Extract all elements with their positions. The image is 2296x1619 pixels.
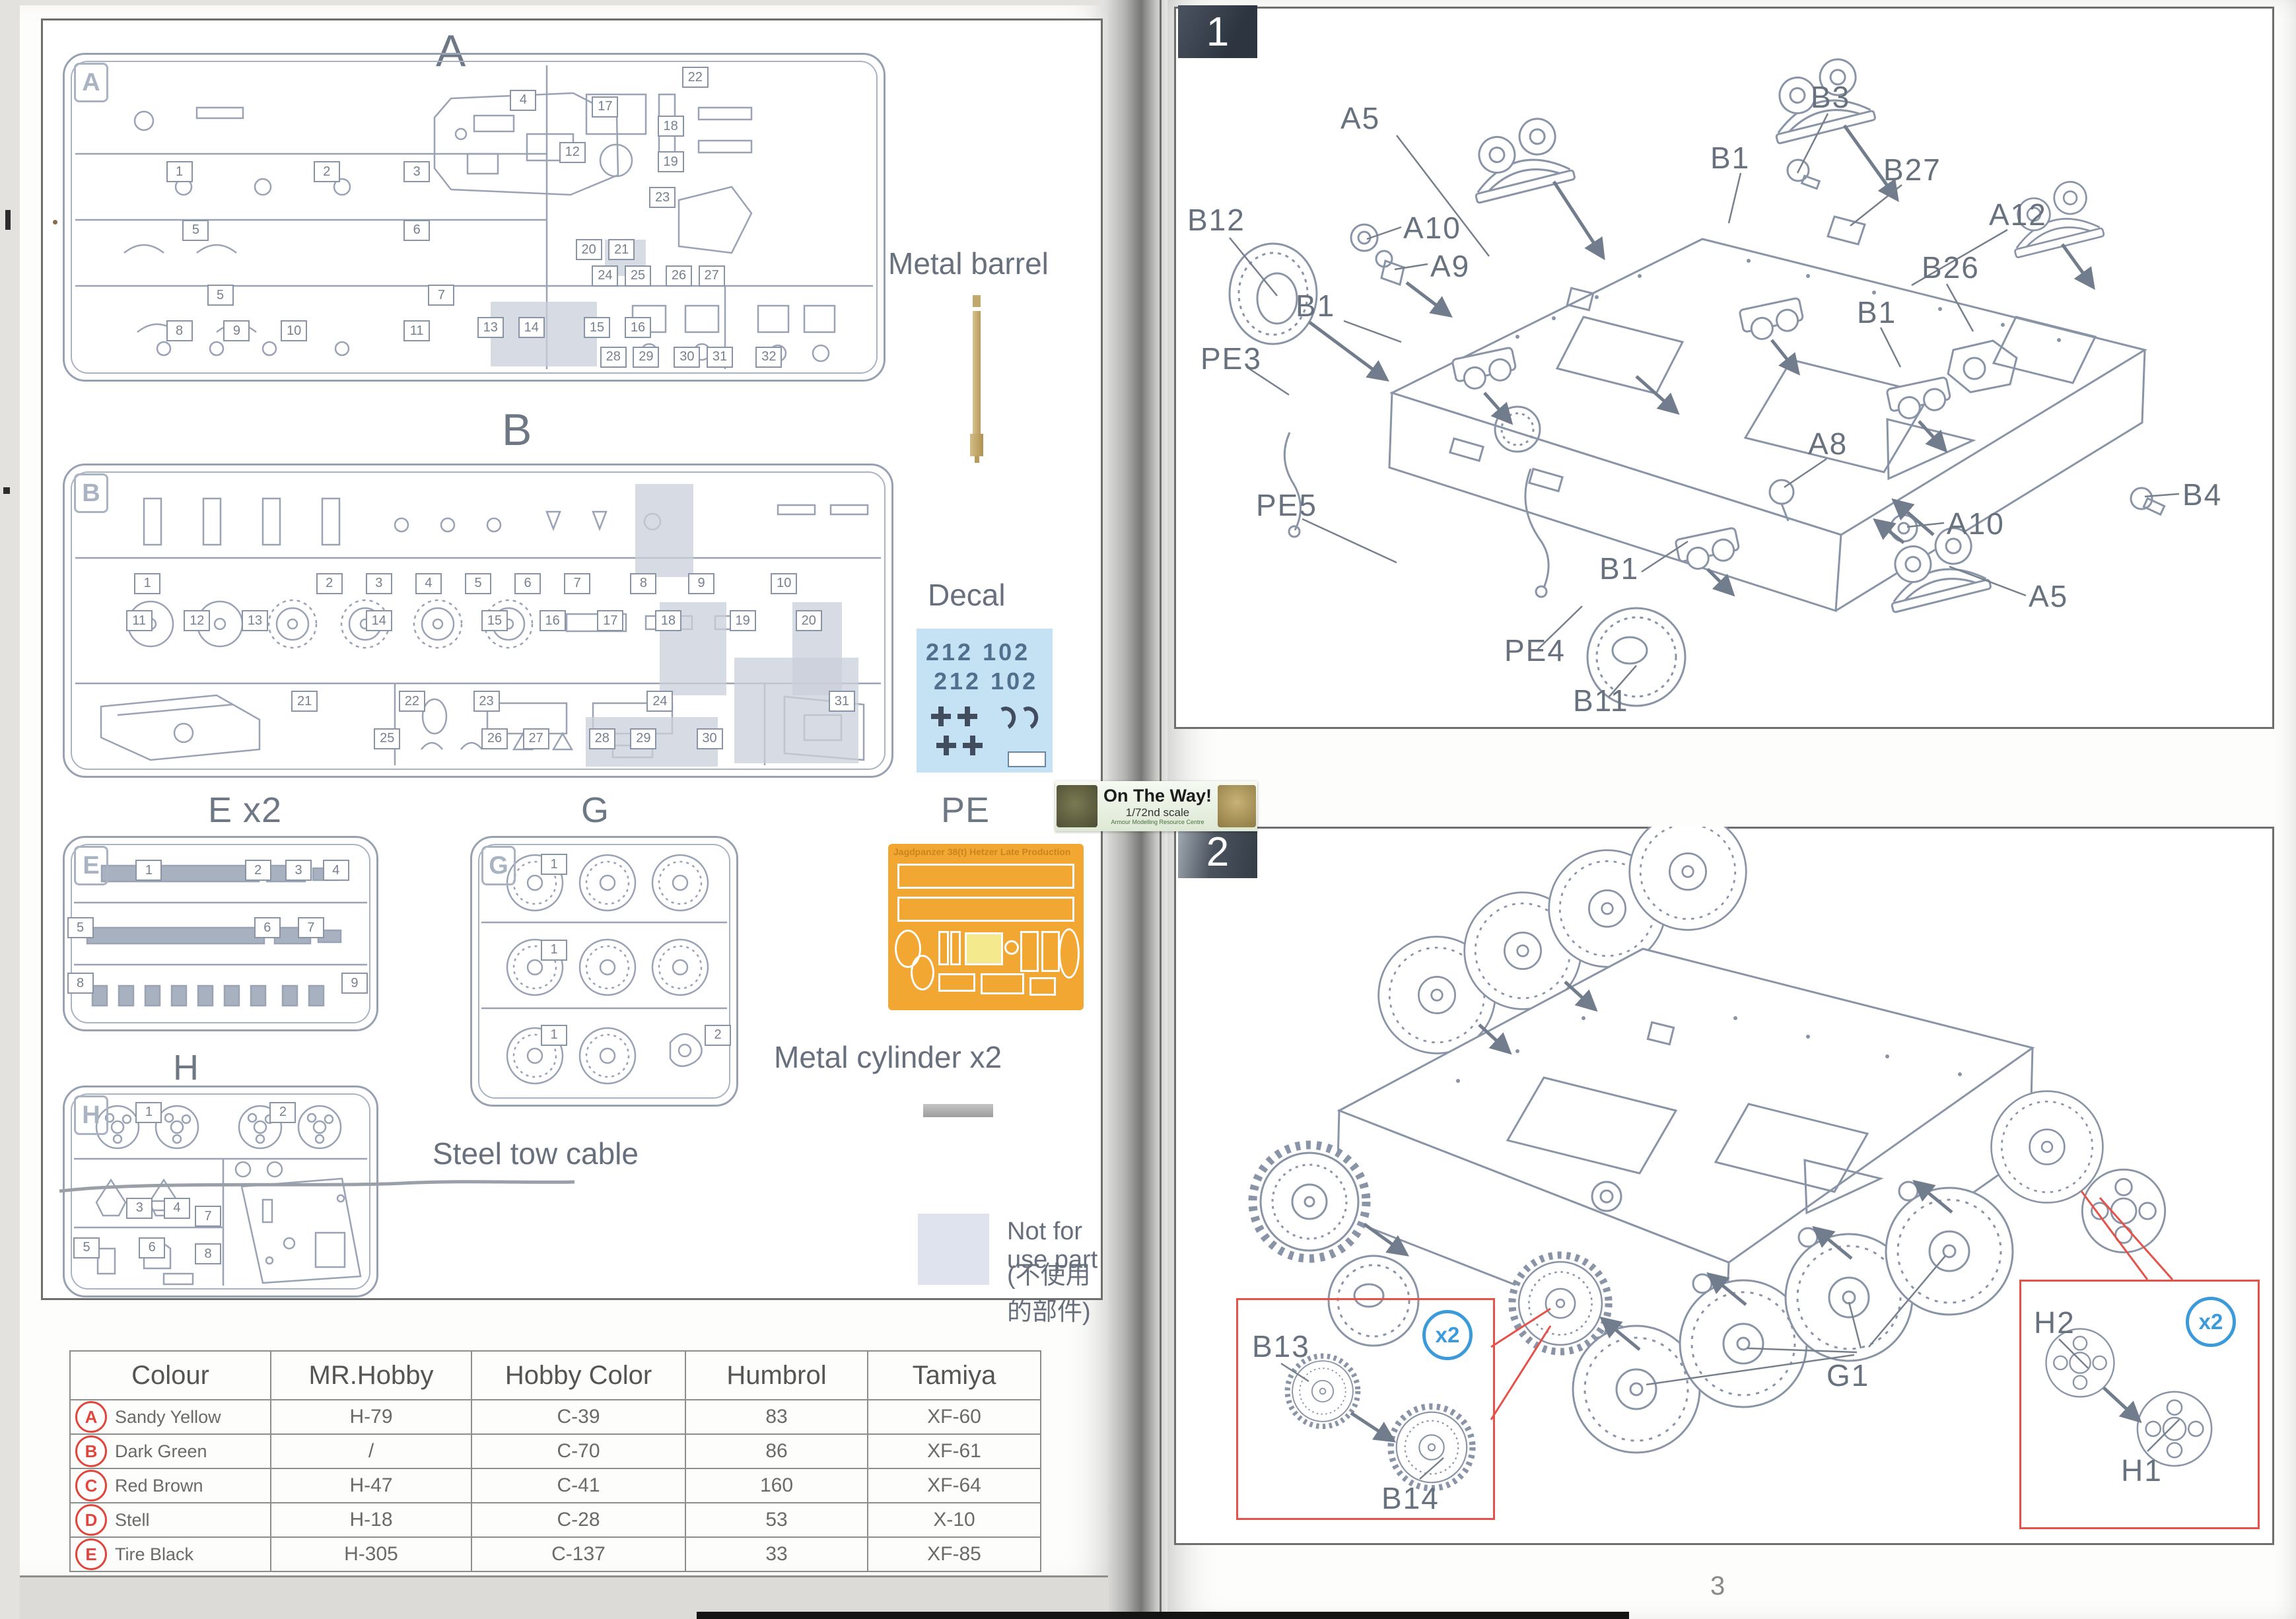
sprue-b-title: B xyxy=(502,404,533,456)
color-value: C-137 xyxy=(471,1537,685,1571)
color-table: ColourMR.HobbyHobby ColorHumbrolTamiya A… xyxy=(69,1350,1041,1572)
part-number-tag: 31 xyxy=(707,347,733,368)
scan-bottom-bar xyxy=(697,1612,1629,1619)
part-number-tag: 27 xyxy=(699,265,725,287)
part-number-tag: 16 xyxy=(625,317,651,338)
part-number-tag: 3 xyxy=(403,161,430,182)
step-2-number-badge: 2 xyxy=(1178,825,1257,878)
pe-title: PE xyxy=(941,790,990,831)
color-value: XF-61 xyxy=(868,1434,1041,1468)
part-callout-pe4: PE4 xyxy=(1504,633,1566,668)
part-number-tag: 30 xyxy=(674,347,700,368)
color-value: C-70 xyxy=(471,1434,685,1468)
scan-edge-mark xyxy=(3,487,10,494)
color-code-badge: B xyxy=(75,1435,107,1467)
part-number-tag: 5 xyxy=(73,1237,100,1258)
part-number-tag: 14 xyxy=(518,317,545,338)
sprue-g: G 1112 xyxy=(470,836,738,1107)
pe-part xyxy=(1020,931,1039,972)
part-number-tag: 30 xyxy=(697,728,723,749)
part-callout-a8: A8 xyxy=(1808,426,1848,462)
step-1-number-badge: 1 xyxy=(1178,5,1257,58)
color-name: Dark Green xyxy=(115,1441,207,1462)
part-callout-b13: B13 xyxy=(1252,1328,1310,1364)
part-number-tag: 25 xyxy=(625,265,651,287)
part-number-tag: 11 xyxy=(403,320,430,341)
part-number-tag: 4 xyxy=(323,860,349,881)
watermark-scale: 1/72nd scale xyxy=(1097,807,1218,818)
part-number-tag: 16 xyxy=(539,610,566,631)
color-value: H-305 xyxy=(271,1537,471,1571)
not-for-use-label-zh: (不使用的部件) xyxy=(1007,1255,1108,1327)
step-1: 1 xyxy=(1174,7,2274,729)
part-number-tag: 1 xyxy=(541,1025,567,1046)
decal-number-1: 212 102 xyxy=(917,629,1053,667)
color-value: H-47 xyxy=(271,1468,471,1503)
part-number-tag: 6 xyxy=(139,1237,165,1258)
part-callout-pe5: PE5 xyxy=(1256,487,1317,523)
part-callout-b14: B14 xyxy=(1381,1480,1440,1516)
part-number-tag: 22 xyxy=(399,691,425,712)
color-table-row: BDark Green/C-7086XF-61 xyxy=(70,1434,1041,1468)
part-callout-b26: B26 xyxy=(1922,250,1980,285)
barrel-pin xyxy=(975,456,979,463)
color-value: 160 xyxy=(685,1468,868,1503)
balkenkreuz-icon xyxy=(936,736,956,755)
color-table-header: MR.Hobby xyxy=(271,1351,471,1400)
part-number-tag: 6 xyxy=(254,917,281,938)
color-table-row: ASandy YellowH-79C-3983XF-60 xyxy=(70,1400,1041,1434)
part-number-tag: 9 xyxy=(688,573,714,594)
decal-sheet: 212 102 212 102 xyxy=(917,629,1053,773)
part-number-tag: 28 xyxy=(600,347,627,368)
color-value: XF-85 xyxy=(868,1537,1041,1571)
color-table-row: ETire BlackH-305C-13733XF-85 xyxy=(70,1537,1041,1571)
part-number-tag: 20 xyxy=(576,239,602,260)
part-number-tag: 8 xyxy=(195,1243,221,1264)
watermark-halftrack-photo xyxy=(1218,785,1256,827)
part-number-tag: 2 xyxy=(316,573,343,594)
decal-mark-icon xyxy=(1014,704,1041,733)
part-number-tag: 24 xyxy=(592,265,618,287)
part-number-tag: 1 xyxy=(135,1102,162,1123)
part-number-tag: 24 xyxy=(646,691,673,712)
part-number-tag: 8 xyxy=(67,973,94,994)
part-number-tag: 7 xyxy=(195,1206,221,1227)
pe-fret: Jagdpanzer 38(t) Hetzer Late Production xyxy=(888,844,1084,1010)
quantity-x2-badge: x2 xyxy=(2186,1297,2236,1347)
part-callout-a10: A10 xyxy=(1947,506,2005,541)
part-number-tag: 23 xyxy=(473,691,500,712)
part-number-tag: 2 xyxy=(314,161,340,182)
part-number-tag: 12 xyxy=(559,142,586,163)
part-callout-a10: A10 xyxy=(1403,210,1461,246)
step-2: 2 xyxy=(1174,827,2274,1545)
quantity-x2-badge: x2 xyxy=(1422,1310,1473,1360)
sprue-b: B 12345678910111213141516171819202122232… xyxy=(63,464,893,778)
color-table-row: CRed BrownH-47C-41160XF-64 xyxy=(70,1468,1041,1503)
part-number-tag: 5 xyxy=(67,917,94,938)
tow-cable-part xyxy=(46,1174,588,1200)
part-number-tag: 5 xyxy=(465,573,491,594)
decal-label: Decal xyxy=(928,577,1006,613)
part-number-tag: 1 xyxy=(541,854,567,875)
color-value: H-18 xyxy=(271,1503,471,1537)
sprue-g-corner-letter: G xyxy=(481,846,516,885)
pe-part xyxy=(1059,928,1080,979)
part-number-tag: 5 xyxy=(182,220,209,241)
part-callout-g1: G1 xyxy=(1826,1358,1869,1393)
sprue-a: A 12341222171819235620215724252627891011… xyxy=(63,53,886,382)
part-callout-b27: B27 xyxy=(1883,152,1941,188)
sprue-e: E 123456789 xyxy=(63,836,378,1031)
part-number-tag: 32 xyxy=(755,347,782,368)
color-code-badge: E xyxy=(75,1538,107,1570)
pe-part xyxy=(938,973,975,992)
part-number-tag: 4 xyxy=(510,90,536,111)
part-number-tag: 3 xyxy=(366,573,392,594)
color-value: XF-64 xyxy=(868,1468,1041,1503)
part-number-tag: 19 xyxy=(658,151,684,172)
scanned-instruction-spread: A B E x2 G PE H xyxy=(0,0,2296,1619)
metal-barrel-part xyxy=(972,295,981,462)
color-name: Stell xyxy=(115,1510,150,1531)
part-number-tag: 12 xyxy=(184,610,210,631)
part-number-tag: 6 xyxy=(514,573,541,594)
not-for-use-shading xyxy=(635,484,693,577)
part-number-tag: 13 xyxy=(477,317,504,338)
decal-number-2: 212 102 xyxy=(917,667,1053,696)
part-number-tag: 18 xyxy=(658,116,684,137)
part-number-tag: 15 xyxy=(584,317,610,338)
watermark-title: On The Way! xyxy=(1097,787,1218,805)
color-table-body: ASandy YellowH-79C-3983XF-60BDark Green/… xyxy=(70,1400,1041,1571)
barrel-collar xyxy=(970,434,983,456)
color-code-badge: A xyxy=(75,1401,107,1433)
part-number-tag: 26 xyxy=(666,265,692,287)
scan-speck xyxy=(53,220,57,224)
part-callout-b1: B1 xyxy=(1599,551,1639,586)
metal-barrel-label: Metal barrel xyxy=(888,246,1049,281)
part-number-tag: 17 xyxy=(592,96,618,118)
pe-part xyxy=(981,973,1024,994)
steel-tow-cable-label: Steel tow cable xyxy=(433,1136,639,1171)
decal-maker-logo xyxy=(1008,751,1046,767)
part-number-tag: 4 xyxy=(164,1198,190,1219)
part-callout-a12: A12 xyxy=(1989,197,2047,232)
color-value: C-41 xyxy=(471,1468,685,1503)
part-callout-b3: B3 xyxy=(1811,79,1850,115)
part-number-tag: 7 xyxy=(428,285,454,306)
pe-fret-title: Jagdpanzer 38(t) Hetzer Late Production xyxy=(893,846,1070,857)
color-value: X-10 xyxy=(868,1503,1041,1537)
part-number-tag: 2 xyxy=(705,1025,731,1046)
part-number-tag: 19 xyxy=(730,610,756,631)
watermark-subtitle: Armour Modelling Resource Centre xyxy=(1097,819,1218,825)
right-page-number: 3 xyxy=(1710,1571,1725,1601)
color-code-badge: C xyxy=(75,1470,107,1501)
part-callout-h1: H1 xyxy=(2121,1453,2163,1488)
color-code-badge: D xyxy=(75,1504,107,1536)
pe-part xyxy=(897,897,1074,922)
part-number-tag: 28 xyxy=(589,728,615,749)
part-number-tag: 10 xyxy=(281,320,307,341)
color-value: XF-60 xyxy=(868,1400,1041,1434)
color-table-header: Humbrol xyxy=(685,1351,868,1400)
sprue-h-corner-letter: H xyxy=(74,1095,108,1135)
part-number-tag: 22 xyxy=(682,67,709,88)
decal-mark-icon xyxy=(991,704,1019,733)
pe-part xyxy=(950,931,961,965)
color-value: / xyxy=(271,1434,471,1468)
part-number-tag: 5 xyxy=(207,285,234,306)
part-number-tag: 6 xyxy=(403,220,430,241)
sprue-h-title: H xyxy=(173,1047,199,1088)
pe-part xyxy=(897,864,1074,889)
step-1-leader-lines xyxy=(1174,7,2274,729)
part-callout-a9: A9 xyxy=(1430,248,1470,284)
on-the-way-watermark: On The Way! 1/72nd scale Armour Modellin… xyxy=(1055,781,1257,831)
part-number-tag: 3 xyxy=(126,1198,153,1219)
part-number-tag: 1 xyxy=(134,573,160,594)
color-table-header: Tamiya xyxy=(868,1351,1041,1400)
sprue-b-corner-letter: B xyxy=(74,473,108,513)
part-number-tag: 8 xyxy=(630,573,656,594)
part-number-tag: 21 xyxy=(291,691,318,712)
sprue-e-corner-letter: E xyxy=(74,846,108,885)
part-number-tag: 31 xyxy=(829,691,855,712)
part-number-tag: 7 xyxy=(564,573,590,594)
balkenkreuz-icon xyxy=(931,706,951,726)
part-number-tag: 20 xyxy=(796,610,822,631)
color-table-head: ColourMR.HobbyHobby ColorHumbrolTamiya xyxy=(70,1351,1041,1400)
part-number-tag: 2 xyxy=(269,1102,296,1123)
part-number-tag: 7 xyxy=(298,917,324,938)
color-value: 86 xyxy=(685,1434,868,1468)
part-number-tag: 1 xyxy=(135,860,162,881)
scan-edge-mark xyxy=(5,210,11,230)
part-number-tag: 13 xyxy=(242,610,268,631)
pe-part xyxy=(911,955,934,990)
part-number-tag: 1 xyxy=(166,161,193,182)
part-number-tag: 4 xyxy=(415,573,442,594)
color-value: C-28 xyxy=(471,1503,685,1537)
barrel-muzzle xyxy=(973,295,981,307)
color-value: 53 xyxy=(685,1503,868,1537)
watermark-tank-photo xyxy=(1057,785,1097,827)
pe-part xyxy=(1004,940,1019,955)
part-callout-h2: H2 xyxy=(2034,1305,2075,1340)
part-number-tag: 25 xyxy=(374,728,400,749)
part-number-tag: 29 xyxy=(633,347,659,368)
sprue-g-title: G xyxy=(581,790,609,831)
part-callout-b11: B11 xyxy=(1573,683,1628,718)
metal-cylinder-part xyxy=(923,1104,993,1117)
part-number-tag: 14 xyxy=(366,610,392,631)
sprue-a-corner-letter: A xyxy=(74,63,108,102)
part-number-tag: 9 xyxy=(341,973,368,994)
part-number-tag: 17 xyxy=(597,610,623,631)
part-callout-a5: A5 xyxy=(2029,578,2068,614)
color-name: Sandy Yellow xyxy=(115,1407,221,1428)
color-value: C-39 xyxy=(471,1400,685,1434)
part-callout-b4: B4 xyxy=(2182,477,2222,512)
part-callout-a5: A5 xyxy=(1340,100,1380,136)
part-number-tag: 21 xyxy=(608,239,635,260)
color-table-header: Hobby Color xyxy=(471,1351,685,1400)
part-number-tag: 3 xyxy=(285,860,312,881)
not-for-use-swatch xyxy=(918,1214,989,1285)
sprue-e-title: E x2 xyxy=(208,790,282,831)
part-number-tag: 29 xyxy=(630,728,656,749)
part-number-tag: 27 xyxy=(523,728,549,749)
part-callout-b12: B12 xyxy=(1187,202,1245,238)
color-table-header: Colour xyxy=(70,1351,271,1400)
part-number-tag: 11 xyxy=(126,610,153,631)
part-number-tag: 10 xyxy=(771,573,797,594)
balkenkreuz-icon xyxy=(963,736,983,755)
part-number-tag: 15 xyxy=(481,610,508,631)
part-callout-b1: B1 xyxy=(1296,288,1335,324)
color-name: Tire Black xyxy=(115,1544,193,1565)
part-number-tag: 9 xyxy=(223,320,250,341)
color-value: 83 xyxy=(685,1400,868,1434)
left-page: A B E x2 G PE H xyxy=(20,5,1108,1577)
part-callout-pe3: PE3 xyxy=(1200,341,1262,376)
color-table-row: DStellH-18C-2853X-10 xyxy=(70,1503,1041,1537)
barrel-shaft xyxy=(973,311,981,434)
pe-part xyxy=(938,931,949,965)
part-number-tag: 8 xyxy=(166,320,193,341)
part-number-tag: 18 xyxy=(655,610,681,631)
color-value: 33 xyxy=(685,1537,868,1571)
right-page: 1 xyxy=(1167,0,2296,1619)
pe-part xyxy=(1041,931,1060,972)
part-number-tag: 1 xyxy=(541,940,567,961)
color-name: Red Brown xyxy=(115,1476,203,1496)
balkenkreuz-icon xyxy=(957,706,977,726)
color-value: H-79 xyxy=(271,1400,471,1434)
part-callout-b1: B1 xyxy=(1710,140,1750,176)
part-number-tag: 2 xyxy=(245,860,271,881)
pe-part xyxy=(1029,977,1056,996)
part-number-tag: 23 xyxy=(649,187,676,208)
part-number-tag: 26 xyxy=(481,728,508,749)
pe-clear-film-part xyxy=(965,932,1003,965)
part-callout-b1: B1 xyxy=(1857,294,1896,330)
metal-cylinder-label: Metal cylinder x2 xyxy=(774,1039,1002,1075)
